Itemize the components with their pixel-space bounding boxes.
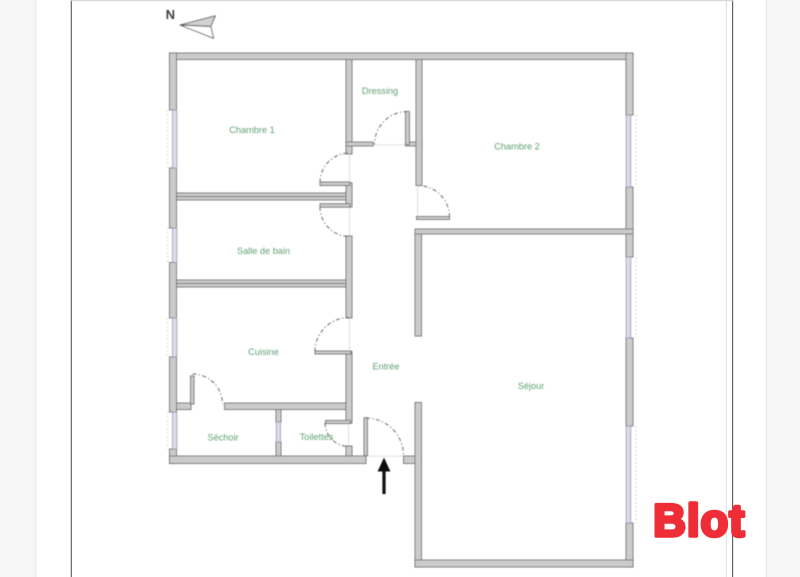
svg-text:Séjour: Séjour [518,381,545,391]
svg-text:Chambre 2: Chambre 2 [494,142,539,152]
svg-text:N: N [166,7,175,22]
svg-text:Blot: Blot [653,495,745,546]
svg-text:Toilettes: Toilettes [300,432,334,442]
svg-text:Dressing: Dressing [362,86,398,96]
svg-text:Chambre 1: Chambre 1 [229,125,274,135]
svg-text:Séchoir: Séchoir [207,433,238,443]
svg-text:Entrée: Entrée [372,362,399,372]
svg-text:Salle de bain: Salle de bain [237,246,290,256]
svg-text:Cuisine: Cuisine [248,347,279,357]
